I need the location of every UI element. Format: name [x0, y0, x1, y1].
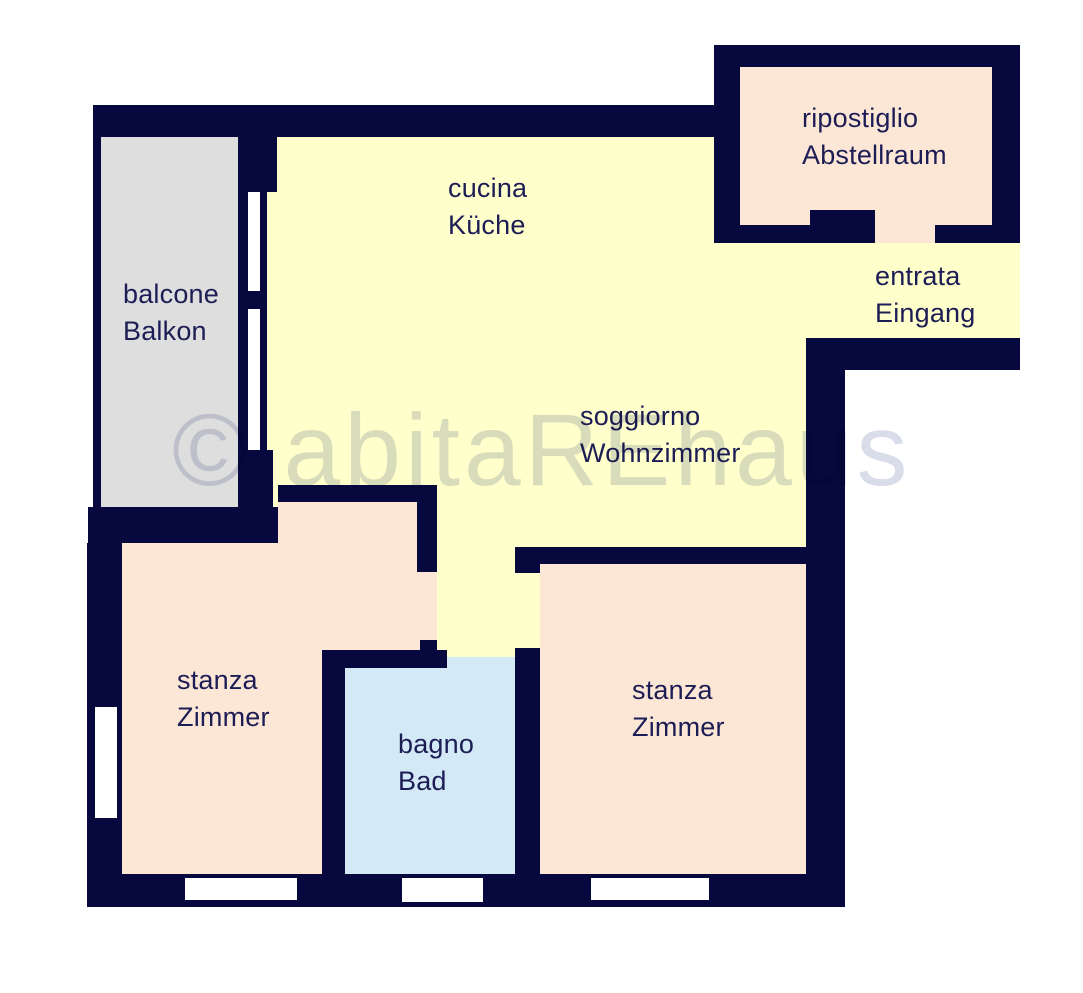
floor-plan: balcone Balkon cucina Küche ripostiglio … — [0, 0, 1083, 993]
corridor-floor — [437, 547, 515, 657]
wall-ripostiglio-south-right — [935, 225, 1020, 243]
label-bagno: bagno Bad — [398, 726, 474, 800]
label-bagno-it: bagno — [398, 726, 474, 763]
window-south-stanza-right — [591, 878, 709, 900]
label-stanza-right: stanza Zimmer — [632, 672, 725, 746]
wall-stanza-left-door-jamb — [417, 502, 437, 572]
wall-balcone-divider-mid — [238, 291, 267, 309]
label-soggiorno: soggiorno Wohnzimmer — [580, 398, 741, 472]
label-cucina-it: cucina — [448, 170, 527, 207]
label-balcone: balcone Balkon — [123, 276, 219, 350]
wall-ripostiglio-east — [992, 45, 1020, 243]
wall-ripostiglio-door-jamb — [810, 210, 875, 243]
wall-stanza-left-north — [278, 485, 437, 502]
window-balcone-upper — [248, 195, 260, 291]
label-ripostiglio: ripostiglio Abstellraum — [802, 100, 947, 174]
wall-balcone-divider-outer — [260, 192, 267, 452]
label-stanza-left: stanza Zimmer — [177, 662, 270, 736]
wall-balcone-divider-top — [238, 137, 277, 192]
label-soggiorno-de: Wohnzimmer — [580, 435, 741, 472]
wall-ripostiglio-west — [714, 45, 740, 243]
wall-soggiorno-south — [515, 547, 845, 564]
wall-entrata-south — [806, 338, 1020, 370]
wall-bagno-east — [515, 648, 540, 877]
wall-balcone-west — [93, 105, 101, 507]
wall-balcone-south — [88, 507, 278, 543]
door-gap-stanza-right — [515, 573, 540, 648]
label-cucina-de: Küche — [448, 207, 527, 244]
label-stanza-right-it: stanza — [632, 672, 725, 709]
label-cucina: cucina Küche — [448, 170, 527, 244]
wall-stanza-right-door-jamb — [515, 547, 540, 573]
wall-ripostiglio-north — [714, 45, 1020, 67]
label-balcone-it: balcone — [123, 276, 219, 313]
window-west — [95, 707, 117, 818]
room-soggiorno-east-floor — [714, 243, 806, 547]
wall-balcone-divider-inner — [238, 192, 248, 452]
label-ripostiglio-it: ripostiglio — [802, 100, 947, 137]
label-stanza-right-de: Zimmer — [632, 709, 725, 746]
label-stanza-left-it: stanza — [177, 662, 270, 699]
window-south-stanza-left — [185, 878, 297, 900]
label-entrata-it: entrata — [875, 258, 976, 295]
window-south-bagno — [402, 878, 483, 902]
label-ripostiglio-de: Abstellraum — [802, 137, 947, 174]
label-bagno-de: Bad — [398, 763, 474, 800]
room-stanza-left-ext-floor — [278, 502, 417, 657]
window-balcone-lower — [248, 309, 260, 450]
label-entrata-de: Eingang — [875, 295, 976, 332]
label-balcone-de: Balkon — [123, 313, 219, 350]
wall-east — [806, 338, 845, 907]
label-entrata: entrata Eingang — [875, 258, 976, 332]
label-stanza-left-de: Zimmer — [177, 699, 270, 736]
door-gap-ripostiglio — [875, 225, 935, 243]
wall-bagno-west — [322, 650, 345, 877]
label-soggiorno-it: soggiorno — [580, 398, 741, 435]
wall-north — [93, 105, 714, 137]
